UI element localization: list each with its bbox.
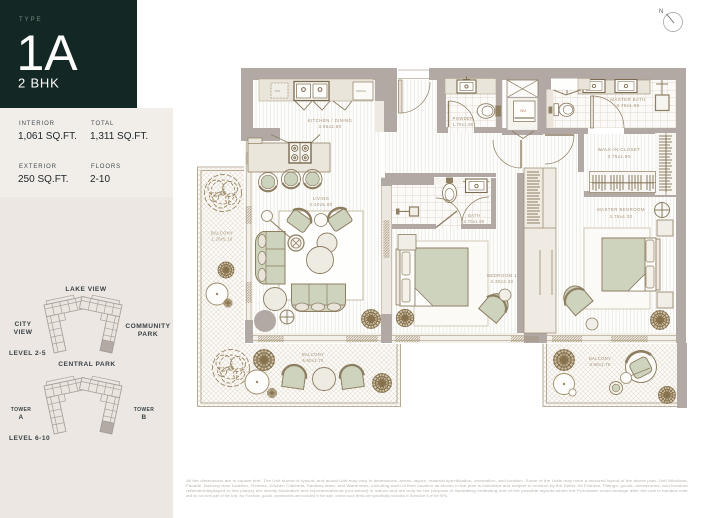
svg-text:3.75x1.50: 3.75x1.50	[617, 103, 640, 108]
svg-text:2.70x1.90: 2.70x1.90	[463, 219, 484, 224]
svg-text:2 BHK: 2 BHK	[18, 76, 60, 91]
svg-text:1,061 SQ.FT.: 1,061 SQ.FT.	[18, 131, 77, 142]
svg-text:MASTER BEDROOM: MASTER BEDROOM	[597, 207, 645, 212]
svg-text:FLOORS: FLOORS	[91, 164, 121, 170]
svg-text:1.70x1.90: 1.70x1.90	[452, 122, 473, 127]
svg-text:All the dimensions are in squa: All the dimensions are in square feet. T…	[186, 479, 688, 483]
svg-text:4.40x5.00: 4.40x5.00	[310, 202, 333, 207]
svg-text:BALCONY: BALCONY	[589, 356, 611, 361]
svg-text:2-10: 2-10	[90, 174, 110, 185]
svg-text:3.75x1.80: 3.75x1.80	[608, 154, 631, 159]
svg-text:CITY: CITY	[14, 321, 31, 328]
svg-text:3.75x4.30: 3.75x4.30	[610, 214, 633, 219]
svg-text:reflected/displayed in this pl: reflected/displayed in this plan(s) are …	[186, 489, 689, 493]
svg-text:BALCONY: BALCONY	[211, 231, 233, 236]
svg-text:TOTAL: TOTAL	[91, 121, 114, 127]
svg-text:TYPE: TYPE	[19, 17, 43, 23]
svg-text:N: N	[659, 9, 663, 15]
svg-text:LEVEL 6-10: LEVEL 6-10	[9, 435, 50, 442]
svg-text:TOWER: TOWER	[134, 407, 155, 413]
svg-text:POWDER: POWDER	[453, 116, 474, 121]
svg-text:250 SQ.FT.: 250 SQ.FT.	[18, 174, 69, 185]
svg-text:BATH: BATH	[468, 213, 480, 218]
svg-text:1A: 1A	[17, 25, 79, 81]
svg-text:4.30x3.30: 4.30x3.30	[491, 279, 514, 284]
svg-text:FRIDGE: FRIDGE	[356, 89, 366, 93]
svg-text:6.60x1.70: 6.60x1.70	[302, 358, 323, 363]
svg-text:CENTRAL PARK: CENTRAL PARK	[58, 361, 115, 368]
svg-text:PARK: PARK	[138, 331, 158, 338]
svg-text:3.60x1.70: 3.60x1.70	[589, 362, 610, 367]
svg-text:A: A	[18, 414, 23, 421]
svg-text:1,311 SQ.FT.: 1,311 SQ.FT.	[90, 131, 148, 142]
svg-text:LAKE VIEW: LAKE VIEW	[65, 286, 106, 293]
svg-text:BALCONY: BALCONY	[302, 352, 324, 357]
svg-text:WALK-IN-CLOSET: WALK-IN-CLOSET	[598, 147, 641, 152]
svg-text:LIVING: LIVING	[313, 196, 330, 201]
svg-text:KITCHEN / DINING: KITCHEN / DINING	[308, 118, 353, 123]
svg-text:LEVEL 2-5: LEVEL 2-5	[9, 350, 46, 357]
svg-text:EXTERIOR: EXTERIOR	[19, 164, 57, 170]
svg-text:INTERIOR: INTERIOR	[19, 121, 55, 127]
svg-text:B: B	[141, 414, 146, 421]
svg-text:Facade, Balcony door location,: Facade, Balcony door location, Fixtures,…	[186, 484, 688, 488]
svg-text:TOWER: TOWER	[11, 407, 32, 413]
svg-text:and do not form part of the Un: and do not form part of the Unit. No Fur…	[186, 494, 448, 498]
svg-text:1.20x5.10: 1.20x5.10	[211, 237, 232, 242]
svg-text:3.95x2.80: 3.95x2.80	[319, 124, 342, 129]
svg-text:BEDROOM 1: BEDROOM 1	[487, 273, 517, 278]
svg-text:MASTER BATH: MASTER BATH	[610, 97, 645, 102]
svg-text:DW: DW	[275, 89, 280, 93]
svg-text:VIEW: VIEW	[14, 329, 33, 336]
svg-text:WM: WM	[520, 109, 526, 113]
svg-text:COMMUNITY: COMMUNITY	[125, 323, 170, 330]
